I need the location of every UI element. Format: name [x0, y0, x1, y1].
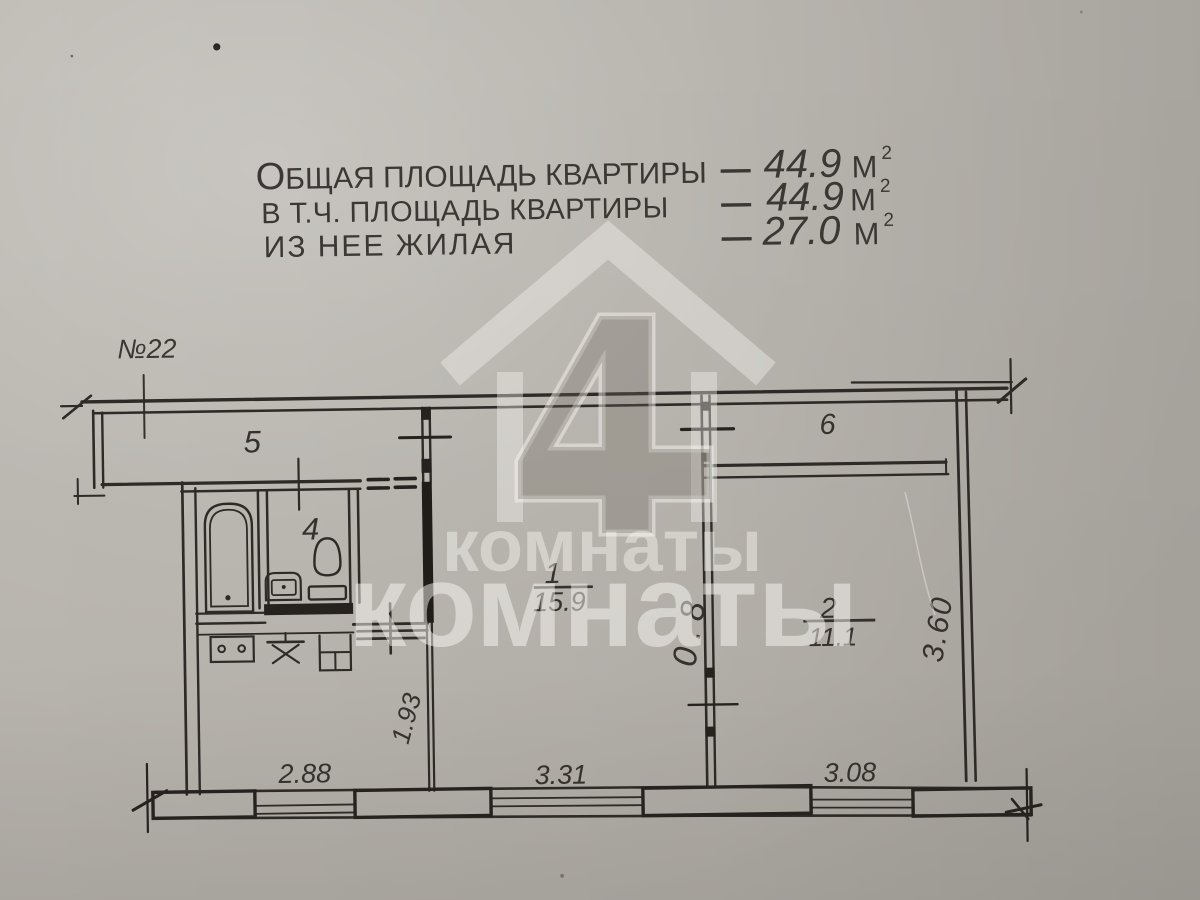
svg-text:ИЗ НЕЕ ЖИЛАЯ: ИЗ НЕЕ ЖИЛАЯ — [263, 227, 516, 264]
svg-text:2: 2 — [880, 176, 891, 197]
svg-text:6: 6 — [819, 409, 836, 441]
svg-text:5: 5 — [243, 424, 262, 459]
svg-text:М: М — [851, 149, 877, 184]
svg-text:3.08: 3.08 — [823, 757, 876, 788]
svg-text:комнаты: комнаты — [348, 540, 859, 672]
svg-text:4: 4 — [302, 511, 320, 546]
svg-text:3.31: 3.31 — [534, 759, 587, 790]
svg-text:2: 2 — [883, 210, 894, 231]
svg-text:27.0: 27.0 — [761, 209, 841, 254]
svg-text:2.88: 2.88 — [277, 758, 331, 789]
svg-text:№22: №22 — [117, 334, 177, 365]
svg-text:М: М — [853, 216, 879, 251]
svg-text:М: М — [850, 182, 876, 217]
svg-text:2: 2 — [881, 143, 892, 164]
